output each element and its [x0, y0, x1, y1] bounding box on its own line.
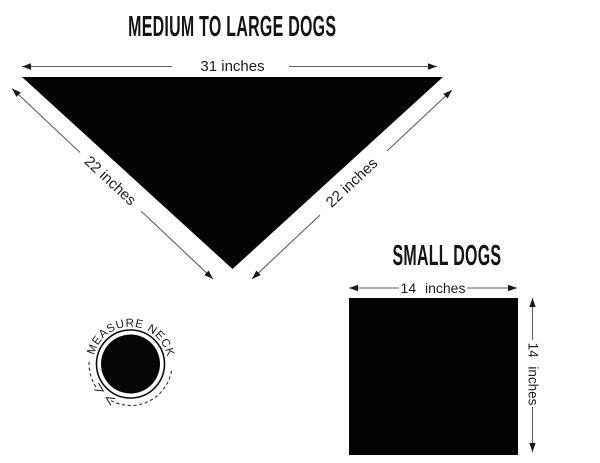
square-width-label: 14 inches: [363, 280, 503, 297]
badge-inner-disc: [101, 335, 160, 394]
medium-large-title-text: MEDIUM TO LARGE DOGS: [128, 12, 336, 42]
small-dogs-title-text: SMALL DOGS: [393, 241, 502, 271]
tape-arc-left: [89, 362, 96, 388]
tape-arrowhead-icon: [104, 394, 115, 405]
small-bandana-square: [349, 298, 518, 455]
small-dogs-title: SMALL DOGS: [348, 241, 518, 271]
square-height-label: 14 inches: [525, 343, 542, 406]
triangle-top-width-label: 31 inches: [160, 58, 305, 75]
bandana-size-diagram: MEASURE NECK MEDIUM TO LARGE DOGS SMALL …: [0, 0, 600, 463]
medium-large-title: MEDIUM TO LARGE DOGS: [0, 12, 465, 42]
measure-neck-badge: MEASURE NECK: [85, 318, 176, 406]
